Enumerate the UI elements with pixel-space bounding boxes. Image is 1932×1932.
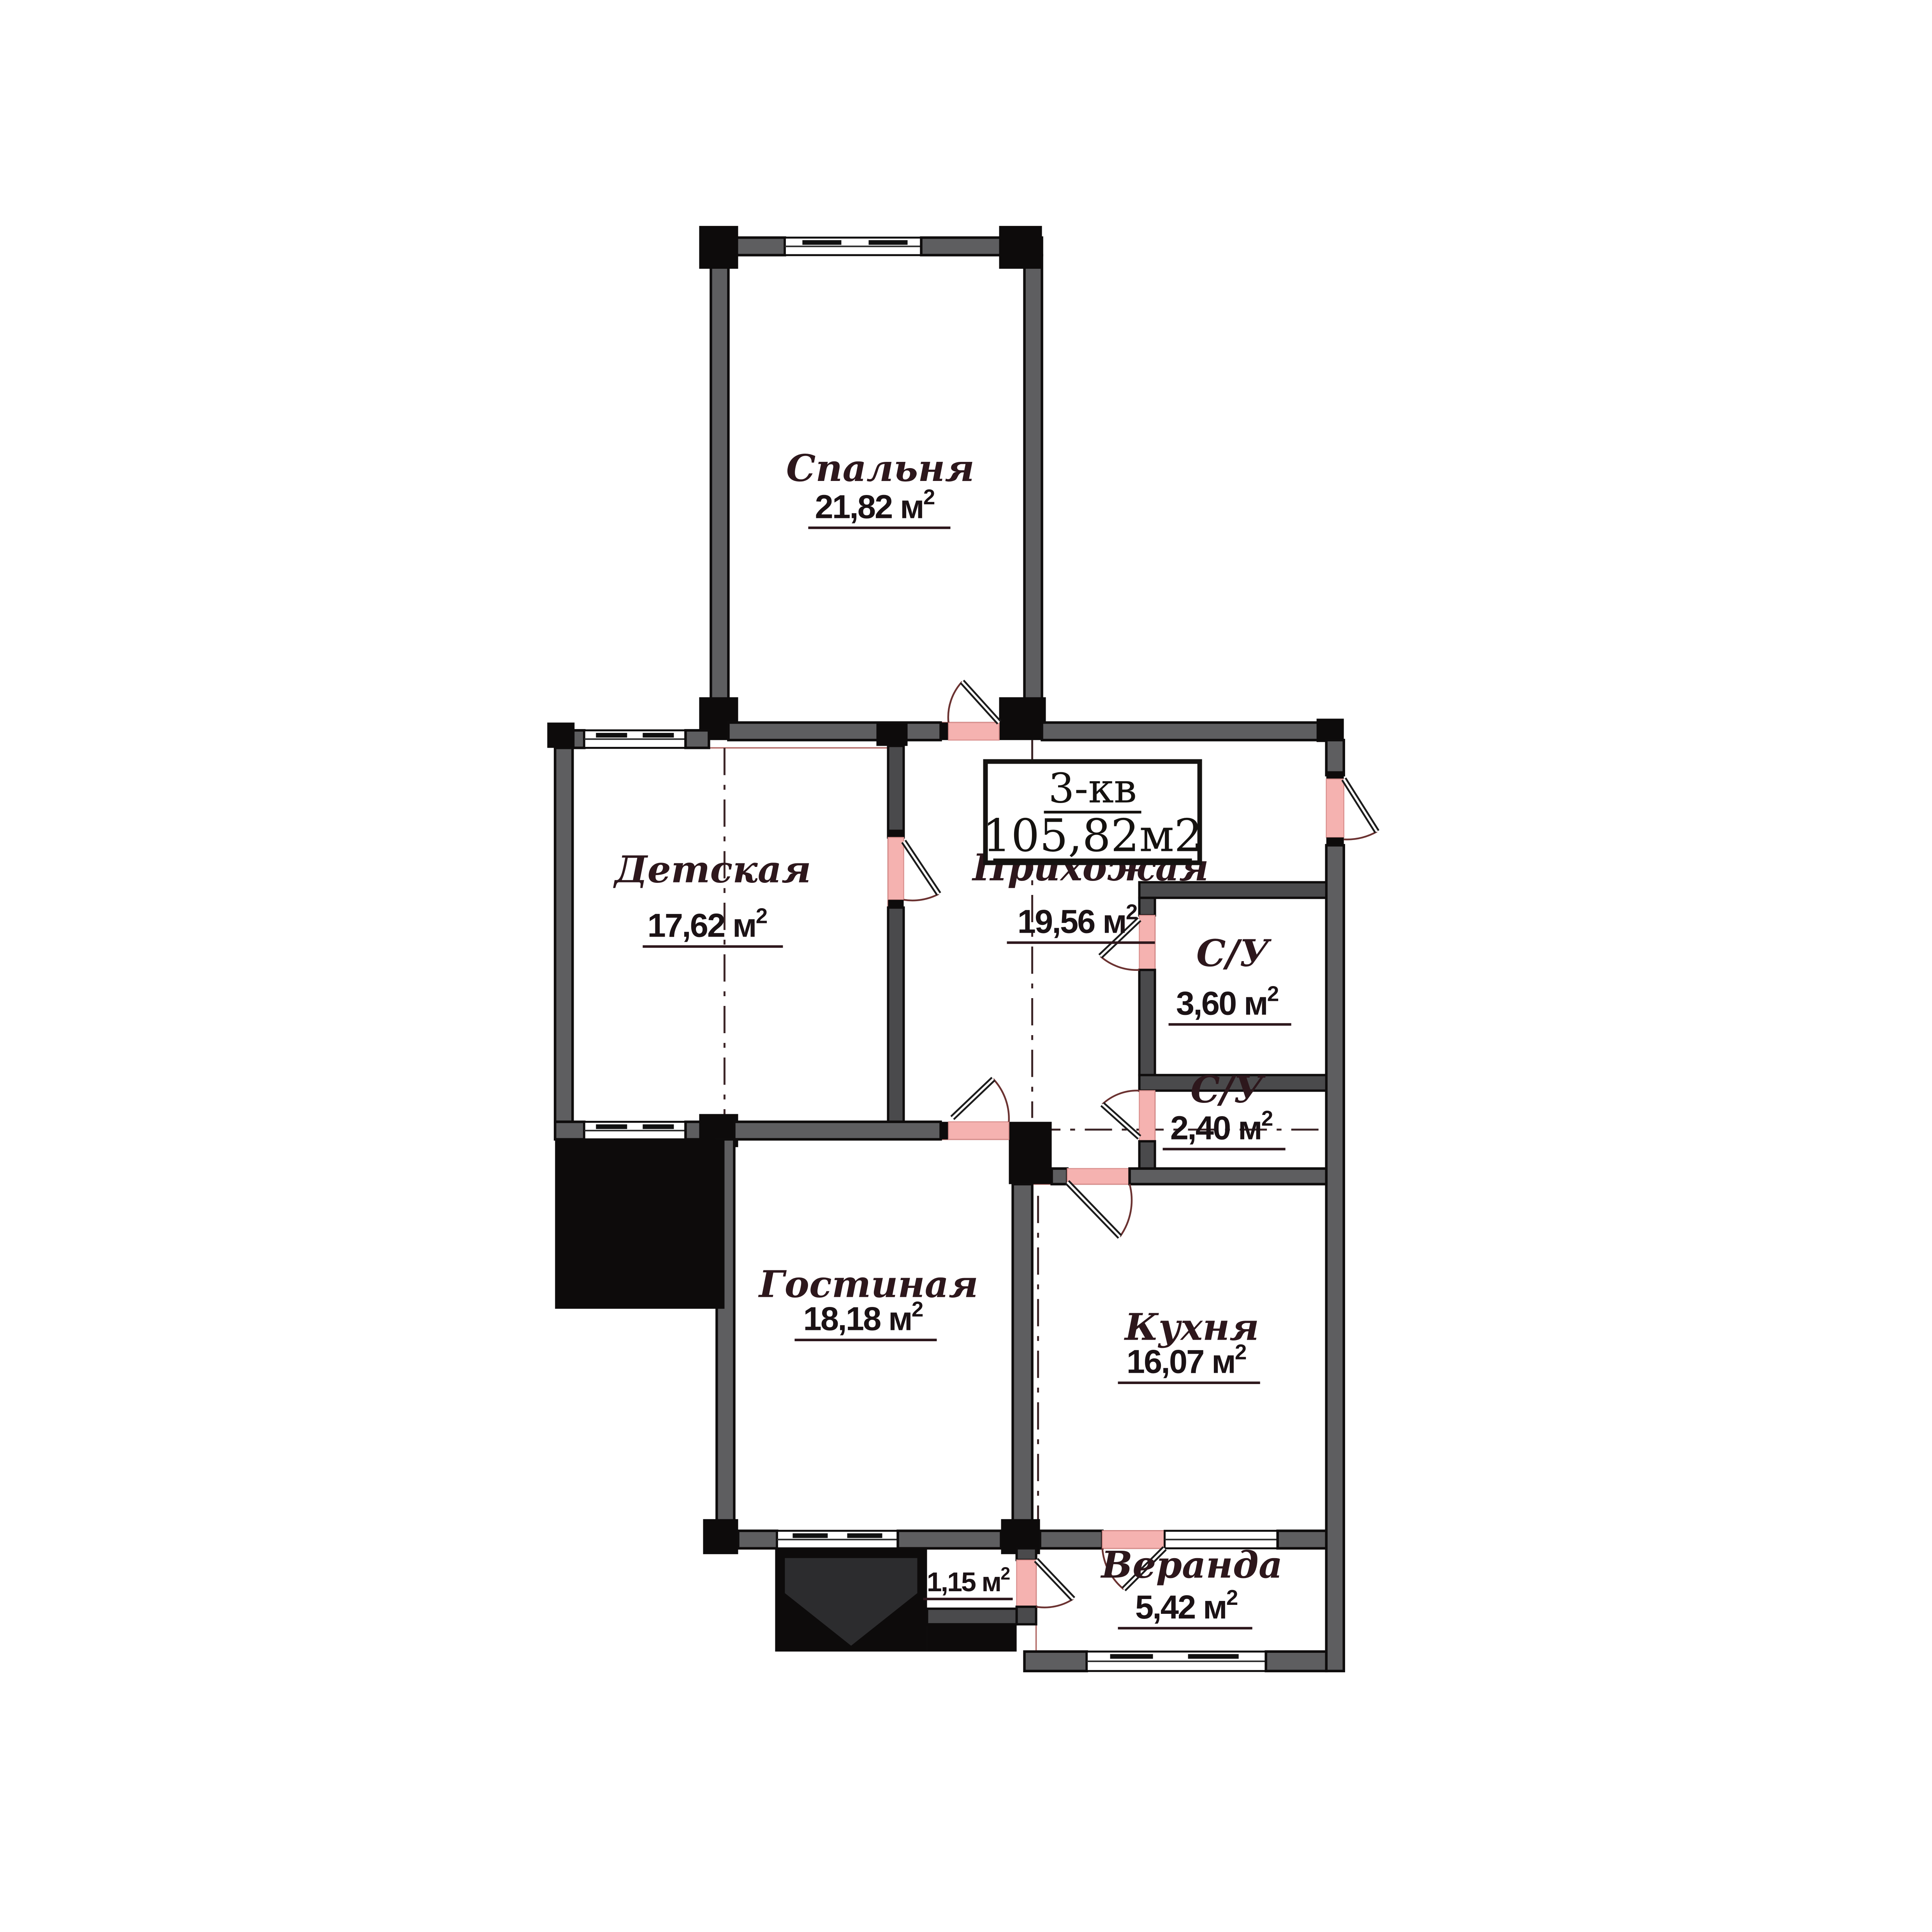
shaft-mid-left xyxy=(555,1139,724,1309)
room-name-spalnya: Спальня xyxy=(786,447,974,490)
veranda-bottom-wall-right xyxy=(1266,1652,1326,1671)
veranda-bottom-wall-left xyxy=(1025,1652,1087,1671)
title-block: 3-кв 105,82м2 xyxy=(983,761,1203,863)
entry-door-jamb-top xyxy=(1326,771,1344,779)
living-column-bottom-left xyxy=(703,1519,738,1554)
total-area: 105,82м2 xyxy=(983,810,1203,862)
room-area-prihozhaya: 19,56 м2 xyxy=(1018,900,1137,940)
living-bottom-wall-right xyxy=(898,1531,1001,1548)
kids-bottom-wall-left xyxy=(555,1122,584,1139)
storage-bottom-wall xyxy=(927,1609,1016,1624)
room-area-detskaya: 17,62 м2 xyxy=(647,903,767,944)
hall-top-wall xyxy=(1042,722,1326,740)
kids-door-opening xyxy=(888,837,903,900)
kids-column-top-left xyxy=(547,722,574,748)
room-name-su1: С/У xyxy=(1196,932,1272,975)
bedroom-right-wall xyxy=(1025,255,1042,705)
kids-column-top-right xyxy=(876,722,907,746)
bathroom1-left-wall-upper xyxy=(1139,898,1155,915)
room-area-veranda: 5,42 м2 xyxy=(1135,1585,1238,1626)
room-name-su2: С/У xyxy=(1191,1068,1266,1111)
bathroom2-left-wall xyxy=(1139,1141,1155,1169)
room-name-veranda: Веранда xyxy=(1100,1543,1283,1587)
living-door-jamb xyxy=(940,1122,948,1139)
kitchen-top-wall-stub xyxy=(1052,1169,1067,1184)
right-wall-lower xyxy=(1326,845,1344,1671)
room-name-gostinaya: Гостиная xyxy=(758,1263,978,1306)
central-column xyxy=(1009,1122,1052,1184)
storage-right-wall-upper xyxy=(1017,1548,1036,1560)
room-area-storage: 1,15 м2 xyxy=(927,1564,1010,1597)
bedroom-left-wall xyxy=(711,255,728,705)
storage-right-wall-lower xyxy=(1017,1607,1036,1624)
bedroom-door-opening xyxy=(948,722,999,740)
storage-door-swing xyxy=(1036,1560,1073,1608)
kitchen-bottom-wall-right xyxy=(1278,1531,1326,1548)
bedroom-door-swing xyxy=(948,682,999,722)
kids-partition-upper xyxy=(888,746,903,837)
storage-door-opening xyxy=(1017,1560,1036,1607)
corner-top-right xyxy=(1317,719,1344,742)
kitchen-door-opening xyxy=(1067,1169,1130,1184)
living-bottom-wall-left xyxy=(738,1531,777,1548)
room-name-detskaya: Детская xyxy=(613,848,811,891)
kids-left-wall xyxy=(555,748,572,1122)
bedroom-door-jamb xyxy=(940,722,948,740)
bathroom1-left-wall-lower xyxy=(1139,970,1155,1075)
room-area-kuhnya: 16,07 м2 xyxy=(1127,1340,1246,1381)
apartment-number: 3-кв xyxy=(1048,764,1137,812)
bedroom-bottom-wall xyxy=(728,722,940,740)
floor-plan-page: Спальня 21,82 м2 Детская 17,62 м2 Прихож… xyxy=(0,0,1932,1932)
right-wall-upper xyxy=(1326,740,1344,775)
floor-plan-svg: Спальня 21,82 м2 Детская 17,62 м2 Прихож… xyxy=(0,0,1932,1932)
entry-door-swing xyxy=(1344,779,1377,839)
living-door-opening xyxy=(948,1122,1009,1139)
living-kitchen-partition xyxy=(1013,1184,1032,1531)
living-top-wall xyxy=(734,1122,940,1139)
bedroom-column-top-right xyxy=(999,226,1042,269)
room-area-su1: 3,60 м2 xyxy=(1176,982,1279,1022)
room-area-spalnya: 21,82 м2 xyxy=(815,485,935,525)
storage-lower-shaft xyxy=(927,1624,1016,1652)
bedroom-column-top-left xyxy=(699,226,738,269)
kids-door-jamb-top xyxy=(888,830,903,837)
kitchen-bottom-wall-left xyxy=(1040,1531,1102,1548)
room-area-su2: 2,40 м2 xyxy=(1170,1106,1273,1147)
room-area-gostinaya: 18,18 м2 xyxy=(803,1297,923,1338)
bathroom2-door-opening xyxy=(1139,1091,1155,1141)
entry-door-opening xyxy=(1326,779,1344,837)
bedroom-column-bottom-right xyxy=(999,697,1046,740)
living-door-swing xyxy=(952,1079,1009,1122)
kids-door-swing xyxy=(903,841,939,900)
kitchen-door-swing xyxy=(1067,1182,1132,1237)
bathroom2-bottom-wall xyxy=(1130,1169,1326,1184)
kids-top-wall-right xyxy=(685,730,709,748)
kids-partition-lower xyxy=(888,907,903,1122)
